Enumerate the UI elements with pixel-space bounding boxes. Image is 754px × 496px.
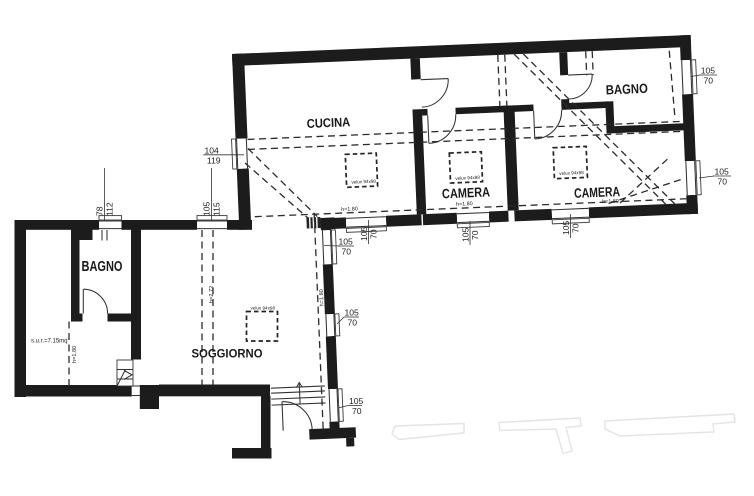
svg-text:velux 94x98: velux 94x98 <box>351 179 376 185</box>
svg-text:velux 94x98: velux 94x98 <box>251 306 276 311</box>
svg-text:CAMERA: CAMERA <box>442 184 491 201</box>
svg-text:105: 105 <box>359 226 369 241</box>
svg-text:70: 70 <box>352 406 362 416</box>
svg-text:CUCINA: CUCINA <box>306 115 350 131</box>
svg-text:BAGNO: BAGNO <box>82 259 123 275</box>
svg-text:105: 105 <box>339 237 354 247</box>
svg-text:105: 105 <box>461 227 471 242</box>
svg-text:105: 105 <box>715 167 730 177</box>
svg-text:s.u.r.=7.15mq: s.u.r.=7.15mq <box>31 339 68 345</box>
svg-text:70: 70 <box>571 223 581 233</box>
svg-text:105: 105 <box>561 220 571 235</box>
svg-text:115: 115 <box>212 202 222 216</box>
svg-text:70: 70 <box>718 177 728 187</box>
svg-text:velux 94x98: velux 94x98 <box>559 170 584 176</box>
svg-text:70: 70 <box>470 230 480 240</box>
svg-text:h=2.72: h=2.72 <box>209 286 215 303</box>
svg-text:105: 105 <box>202 201 212 216</box>
svg-text:h=1.80: h=1.80 <box>456 201 473 208</box>
svg-text:BAGNO: BAGNO <box>606 81 649 98</box>
svg-text:70: 70 <box>704 76 714 86</box>
svg-text:112: 112 <box>105 202 115 216</box>
svg-text:70: 70 <box>342 247 352 257</box>
svg-text:h=1.80: h=1.80 <box>319 289 326 306</box>
svg-text:78: 78 <box>95 206 105 216</box>
svg-text:105: 105 <box>345 308 360 318</box>
svg-text:h=1.80: h=1.80 <box>72 346 78 363</box>
svg-text:h=1.80: h=1.80 <box>602 199 619 206</box>
svg-text:70: 70 <box>369 229 379 239</box>
svg-text:105: 105 <box>349 396 364 406</box>
svg-text:119: 119 <box>207 155 221 165</box>
svg-text:104: 104 <box>205 145 220 155</box>
svg-text:SOGGIORNO: SOGGIORNO <box>192 347 263 361</box>
svg-text:105: 105 <box>701 66 716 76</box>
svg-text:70: 70 <box>348 318 358 328</box>
svg-text:h=1.80: h=1.80 <box>341 206 358 213</box>
svg-text:velux 94x98: velux 94x98 <box>455 175 480 181</box>
